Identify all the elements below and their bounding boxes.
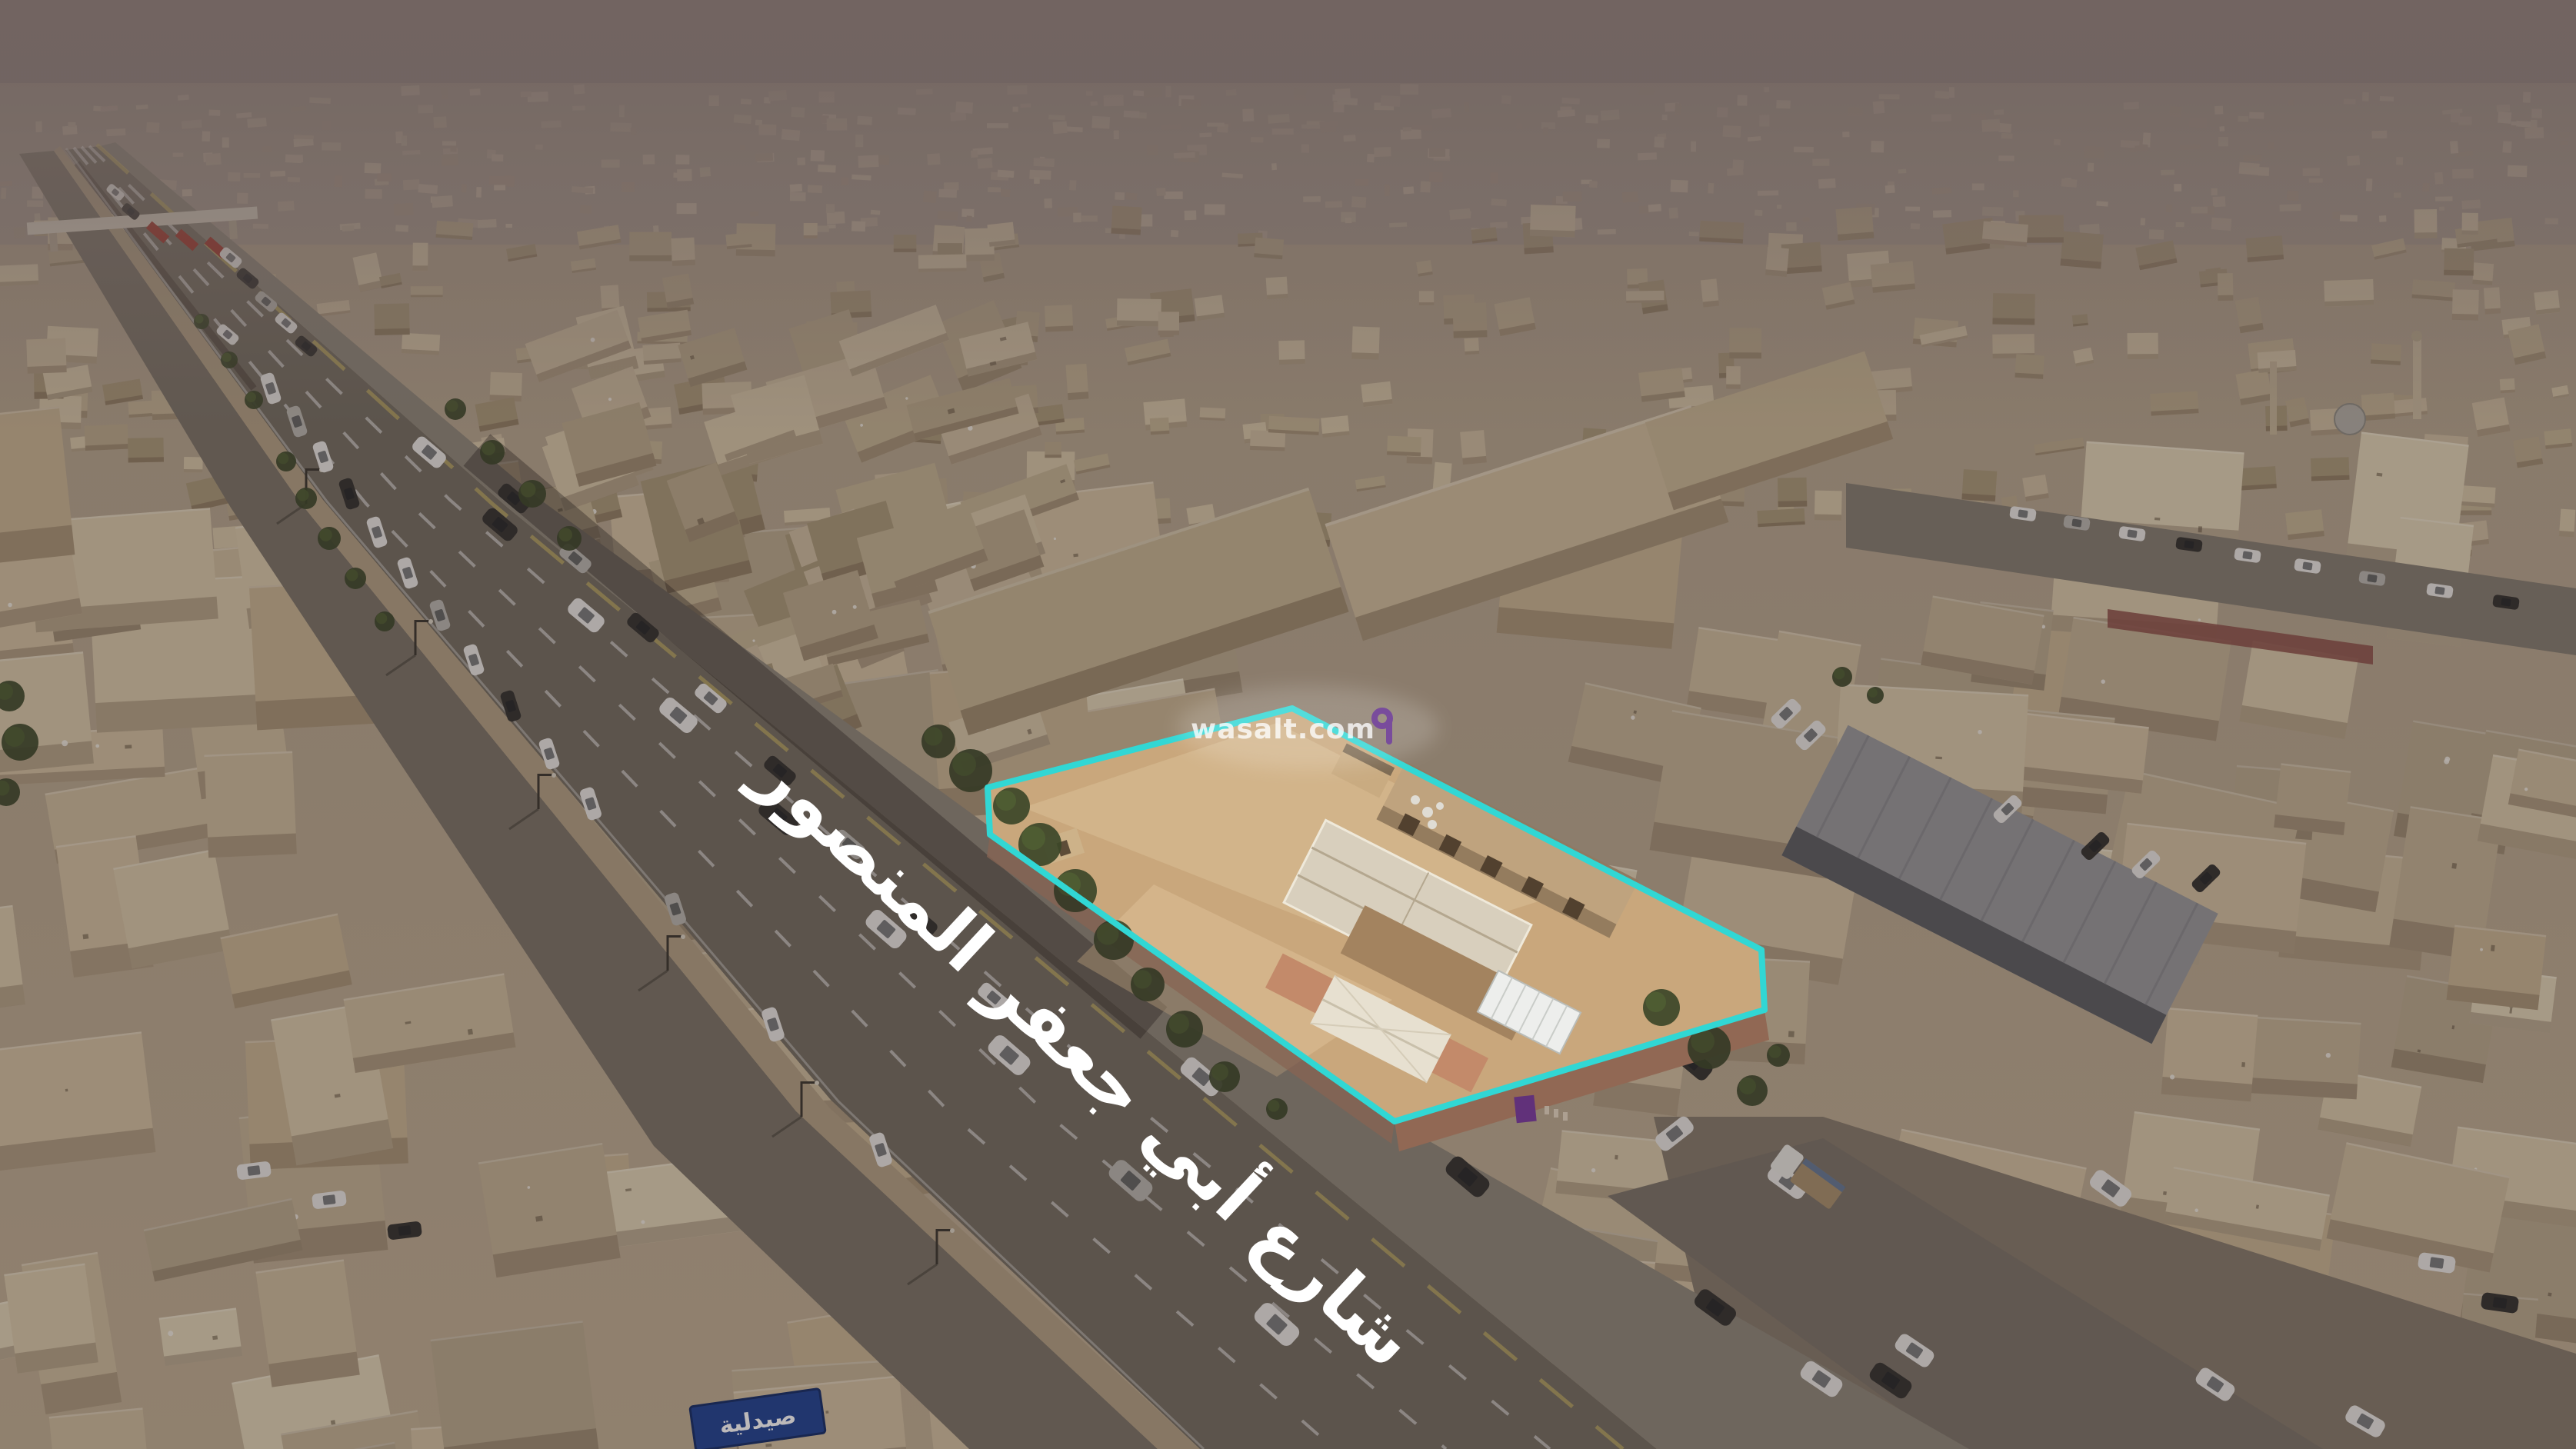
- tree: [993, 788, 1030, 824]
- tree: [1643, 989, 1680, 1026]
- aerial-photo-canvas: صيدلية شارع أبي جعفر المنصور wasalt.com: [0, 0, 2576, 1449]
- watermark-text: wasalt.com: [1191, 714, 1375, 745]
- aerial-property-photo: صيدلية شارع أبي جعفر المنصور wasalt.com: [0, 0, 2576, 1449]
- watermark: wasalt.com: [1177, 686, 1438, 769]
